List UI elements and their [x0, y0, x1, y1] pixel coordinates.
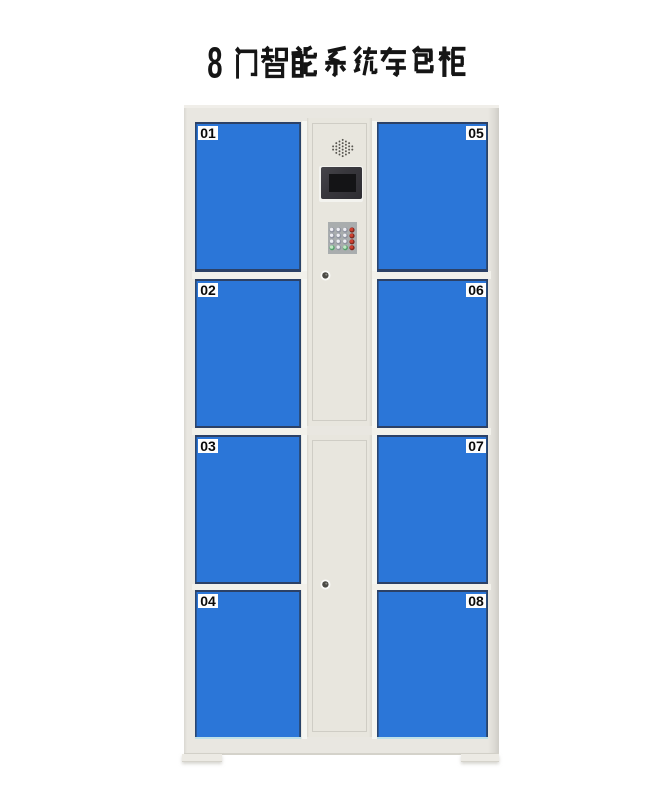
svg-text:8: 8	[207, 40, 222, 84]
